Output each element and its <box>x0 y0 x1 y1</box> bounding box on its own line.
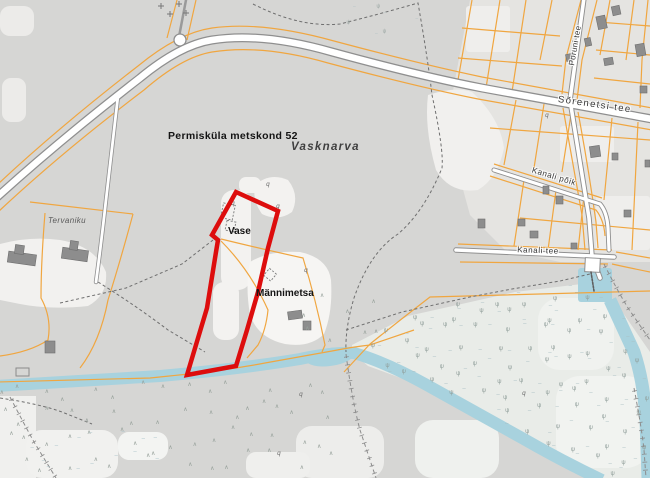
local-road <box>96 96 118 282</box>
svg-text:q: q <box>299 391 303 398</box>
map-canvas[interactable]: qqq qqq qq ∧∧∧∧∧∧∧∧∧∧∧∧∧∧∧∧∧∧∧∧∧∧∧∧∧∧∧∧∧… <box>0 0 650 478</box>
svg-text:q: q <box>304 267 308 274</box>
bridge <box>585 258 601 273</box>
svg-text:q: q <box>545 112 549 119</box>
map-base-layers: qqq qqq qq <box>0 0 650 478</box>
svg-text:q: q <box>266 181 270 188</box>
svg-text:q: q <box>277 450 281 457</box>
harbor-basin <box>578 268 612 302</box>
wetland-area <box>352 283 650 478</box>
svg-text:q: q <box>522 390 526 397</box>
